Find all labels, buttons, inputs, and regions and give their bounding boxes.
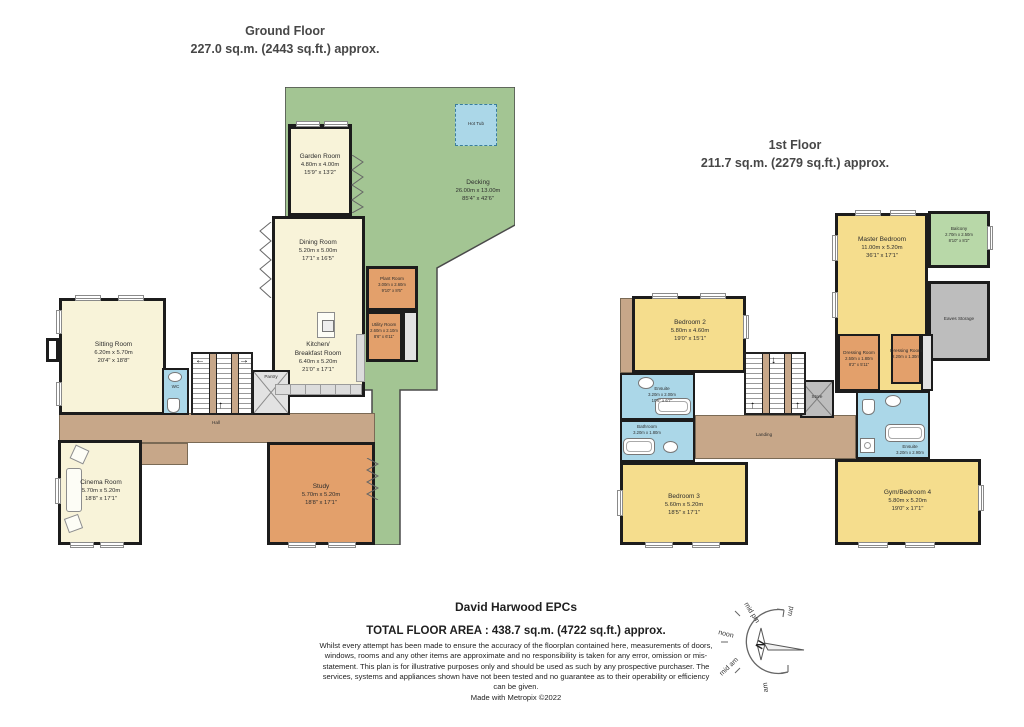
window <box>70 542 94 548</box>
label-wc: WC <box>162 384 189 390</box>
label-gym: Gym/Bedroom 45.80m x 5.20m19'0" x 17'1" <box>850 488 965 513</box>
stair-arrow-right-icon: → <box>239 356 249 366</box>
stair-rail <box>231 354 239 413</box>
compass-label-am: am <box>762 682 770 693</box>
company-name: David Harwood EPCs <box>316 600 716 614</box>
sink <box>885 395 901 407</box>
stair-rail <box>762 354 770 413</box>
shower <box>860 438 875 453</box>
label-study: Study5.70m x 5.20m18'8" x 17'1" <box>277 482 365 507</box>
bifold-door <box>351 155 364 213</box>
label-utility: Utility Room2.60m x 2.10m8'6" x 6'11" <box>360 322 408 340</box>
label-bedroom2: Bedroom 25.80m x 4.60m19'0" x 15'1" <box>640 318 740 343</box>
window <box>832 292 838 318</box>
made-with: Made with Metropix ©2022 <box>316 693 716 702</box>
bathtub <box>623 438 655 455</box>
window <box>296 121 320 127</box>
window <box>288 542 316 548</box>
window <box>56 310 62 334</box>
bifold-door <box>259 222 272 298</box>
stair-arrow-icon: ↑ <box>795 401 800 411</box>
label-decking: Decking26.00m x 13.00m85'4" x 42'6" <box>418 178 538 203</box>
window <box>652 293 678 299</box>
label-sitting: Sitting Room6.20m x 5.70m20'4" x 18'8" <box>66 340 161 365</box>
sink <box>168 372 182 382</box>
hallway <box>59 413 375 443</box>
compass-label-mid-pm: mid pm <box>742 601 760 624</box>
label-landing: Landing <box>742 432 786 438</box>
window <box>100 542 124 548</box>
label-kitchen: Kitchen/Breakfast Room6.40m x 5.20m21'0"… <box>276 340 360 374</box>
window <box>328 542 356 548</box>
window <box>978 485 984 511</box>
bifold-door <box>366 458 379 500</box>
footer: David Harwood EPCs TOTAL FLOOR AREA : 43… <box>316 600 716 702</box>
compass-pointer-icon <box>764 643 804 650</box>
floorplan-canvas: Ground Floor 227.0 sq.m. (2443 sq.ft.) a… <box>0 0 1024 727</box>
ground-floor-title: Ground Floor 227.0 sq.m. (2443 sq.ft.) a… <box>150 22 420 58</box>
stair-rail <box>209 354 217 413</box>
total-floor-area: TOTAL FLOOR AREA : 438.7 sq.m. (4722 sq.… <box>316 625 716 637</box>
bathtub <box>885 424 925 442</box>
chimney <box>46 338 59 362</box>
label-eaves: Eaves Storage <box>928 316 990 322</box>
compass-label-noon: noon <box>718 629 735 640</box>
compass-label-pm: pm <box>786 605 795 616</box>
stair-arrow-down-icon: ↓ <box>771 356 776 366</box>
label-bathroom: Bathroom3.20m x 1.80m <box>622 424 672 436</box>
label-dressing1: Dressing Room2.50m x 1.80m8'2" x 5'11" <box>838 350 880 368</box>
arc-arrowhead-icon <box>777 609 784 617</box>
compass-north-label: N <box>754 639 768 652</box>
label-ensuite2: Ensuite3.20m x 2.00m10'6" x 6'7" <box>640 386 684 404</box>
label-hot-tub: Hot Tub <box>455 121 497 127</box>
label-dressing2: Dressing Room2.20m x 1.30m <box>889 348 923 360</box>
wardrobe-strip <box>921 334 933 391</box>
window <box>905 542 935 548</box>
disclaimer: Whilst every attempt has been made to en… <box>316 641 716 692</box>
window <box>56 382 62 406</box>
label-store: Store <box>800 394 834 400</box>
arc-arrowhead-icon <box>781 665 788 673</box>
stairs-first: ↓ ↑ ↑ <box>744 352 806 415</box>
stair-arrow-icon: ↑ <box>750 401 755 411</box>
window <box>855 210 881 216</box>
first-floor-title: 1st Floor 211.7 sq.m. (2279 sq.ft.) appr… <box>665 136 925 172</box>
ground-floor-title-line1: Ground Floor <box>245 24 325 38</box>
window <box>324 121 348 127</box>
label-dining: Dining Room5.20m x 5.00m17'1" x 16'5" <box>278 238 358 263</box>
compass: N pm mid pm noon mid am am <box>716 592 812 696</box>
toilet <box>862 399 875 415</box>
window <box>55 478 61 504</box>
label-cinema: Cinema Room5.70m x 5.20m18'8" x 17'1" <box>62 478 140 503</box>
window <box>645 542 673 548</box>
stair-arrow-left-icon: ← <box>195 356 205 366</box>
label-plant: Plant Room3.00m x 2.60m9'10" x 8'6" <box>366 276 418 294</box>
kitchen-counter <box>275 384 362 395</box>
window <box>858 542 888 548</box>
label-hall: Hall <box>196 420 236 426</box>
label-balcony: Balcony2.70m x 2.50m8'10" x 8'2" <box>928 226 990 244</box>
window <box>118 295 144 301</box>
first-floor-title-line1: 1st Floor <box>769 138 822 152</box>
window <box>617 490 623 516</box>
toilet <box>167 398 180 413</box>
ground-floor-title-line2: 227.0 sq.m. (2443 sq.ft.) approx. <box>191 42 380 56</box>
stair-rail <box>784 354 792 413</box>
label-garden: Garden Room4.80m x 4.00m15'9" x 13'2" <box>288 152 352 177</box>
label-bedroom3: Bedroom 35.60m x 5.20m18'5" x 17'1" <box>634 492 734 517</box>
sink <box>663 441 678 453</box>
label-ensuite-master: Ensuite3.20m x 2.90m <box>890 444 930 456</box>
window <box>692 542 720 548</box>
label-pantry: Pantry <box>252 374 290 380</box>
window <box>743 315 749 339</box>
window <box>700 293 726 299</box>
window <box>75 295 101 301</box>
first-floor-title-line2: 211.7 sq.m. (2279 sq.ft.) approx. <box>701 156 889 170</box>
stairs-ground: ← → ↑ <box>191 352 253 415</box>
window <box>890 210 916 216</box>
compass-label-mid-am: mid am <box>719 656 740 677</box>
label-master: Master Bedroom11.00m x 5.20m36'1" x 17'1… <box>838 235 926 260</box>
stair-arrow-up-icon: ↑ <box>218 401 223 411</box>
kitchen-island <box>317 312 335 338</box>
